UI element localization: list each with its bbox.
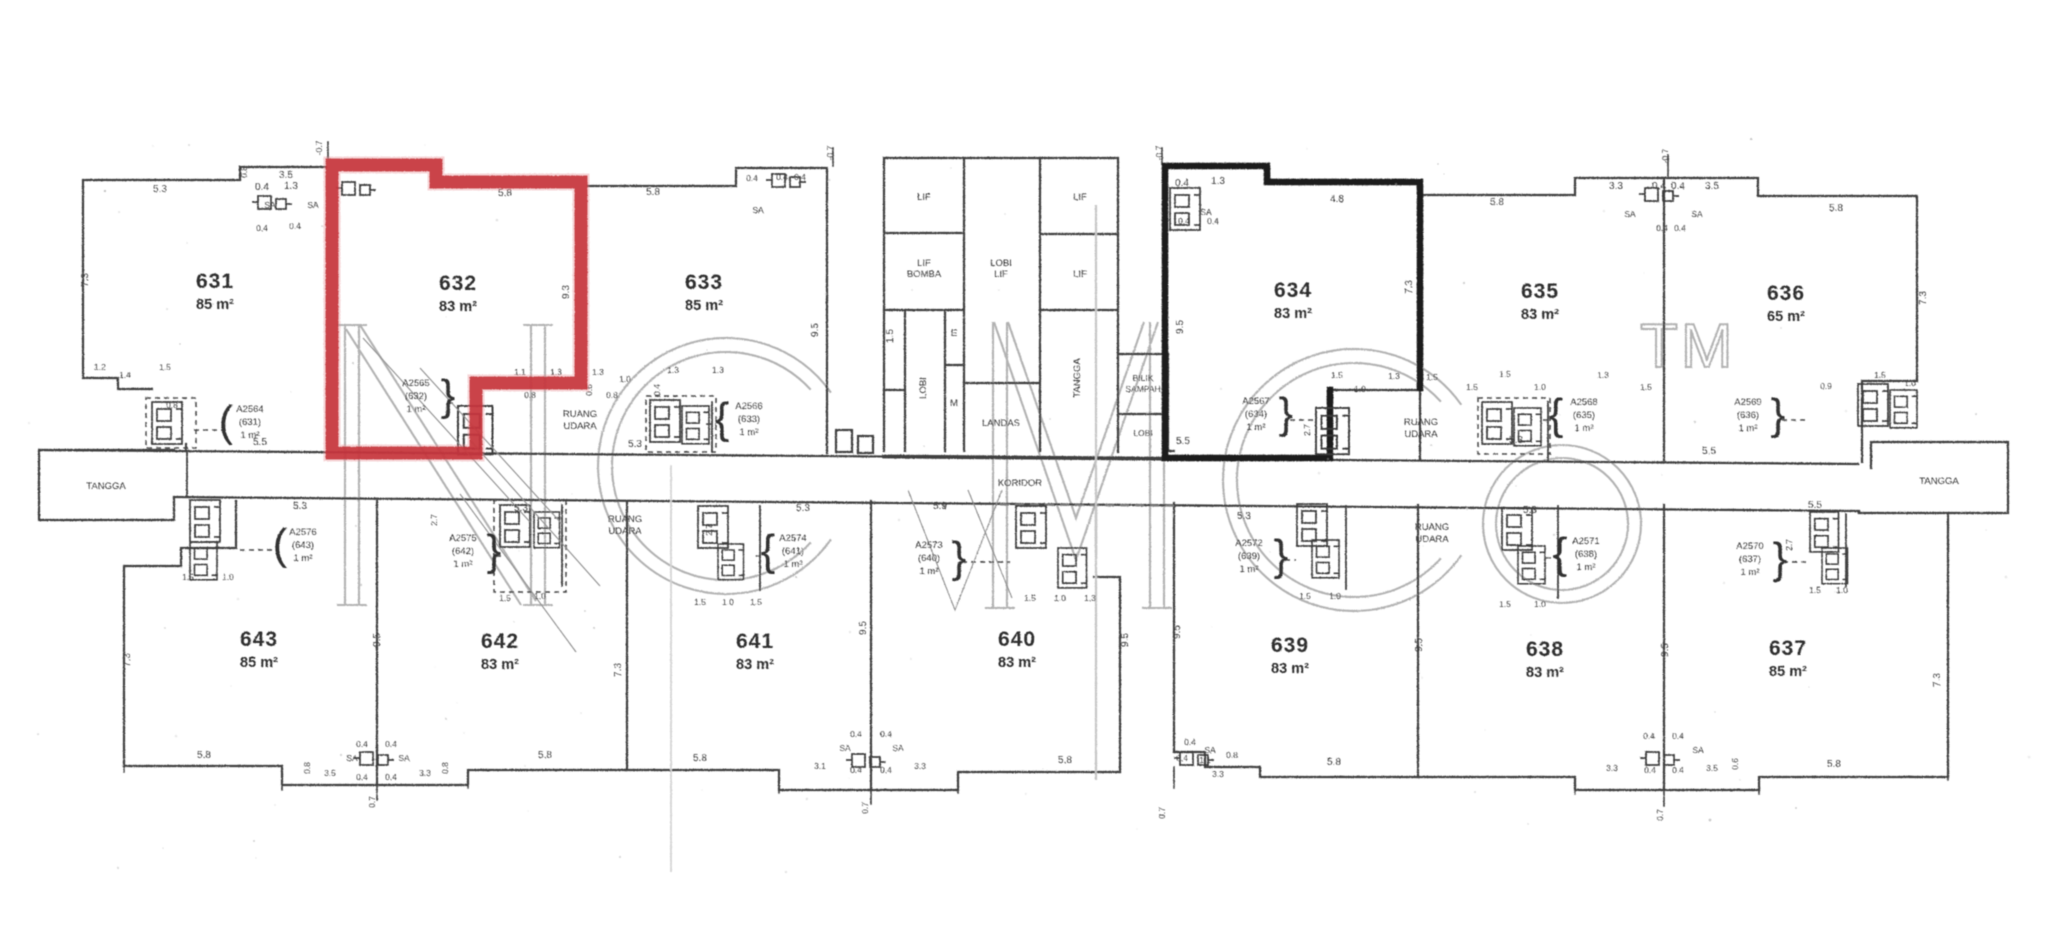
svg-text:1.5: 1.5	[1499, 599, 1511, 609]
svg-text:1.5: 1.5	[885, 329, 896, 343]
svg-text:7.3: 7.3	[122, 653, 133, 667]
svg-text:632: 632	[439, 272, 477, 295]
svg-text:7.3: 7.3	[613, 663, 624, 677]
svg-text:A2571: A2571	[1572, 536, 1599, 547]
svg-text:2.7: 2.7	[429, 514, 439, 526]
svg-text:1 m²: 1 m²	[920, 566, 939, 577]
svg-text:83 m²: 83 m²	[1526, 665, 1564, 681]
svg-text:0.4: 0.4	[880, 765, 892, 775]
svg-text:A2567: A2567	[1242, 396, 1269, 407]
svg-text:0.4: 0.4	[356, 772, 368, 782]
svg-text:0.7: 0.7	[367, 796, 377, 808]
svg-text:A2575: A2575	[449, 533, 476, 544]
svg-text:0.4: 0.4	[850, 765, 862, 775]
svg-text:A2576: A2576	[289, 527, 316, 538]
svg-text:0.4: 0.4	[1178, 216, 1190, 226]
svg-text:0.8: 0.8	[440, 762, 450, 774]
svg-text:SA: SA	[1692, 745, 1704, 755]
svg-text:1 m²: 1 m²	[784, 559, 803, 570]
svg-text:1 m²: 1 m²	[740, 427, 759, 438]
svg-text:641: 641	[736, 630, 774, 653]
svg-text:LANDAS: LANDAS	[982, 418, 1020, 429]
svg-text:0.4: 0.4	[1643, 731, 1655, 741]
svg-text:5.8: 5.8	[1827, 759, 1841, 770]
svg-text:1 m²: 1 m²	[1577, 562, 1596, 573]
svg-text:}: }	[952, 533, 967, 582]
svg-text:1.0: 1.0	[1904, 378, 1916, 388]
svg-text:642: 642	[481, 630, 519, 653]
svg-text:0.4: 0.4	[880, 729, 892, 739]
svg-text:7.3: 7.3	[80, 273, 91, 287]
svg-text:85 m²: 85 m²	[1769, 664, 1807, 680]
svg-text:1.0: 1.0	[1534, 382, 1546, 392]
svg-text:{: {	[715, 394, 730, 443]
svg-text:633: 633	[685, 271, 723, 294]
svg-text:3.1: 3.1	[814, 761, 826, 771]
svg-text:-0.7: -0.7	[825, 145, 835, 160]
svg-text:(634): (634)	[1245, 409, 1267, 420]
svg-text:0.4: 0.4	[385, 772, 397, 782]
svg-text:0.4: 0.4	[1644, 765, 1656, 775]
svg-text:0.4: 0.4	[1207, 216, 1219, 226]
svg-text:LOBI: LOBI	[918, 377, 929, 399]
svg-text:2.7: 2.7	[1302, 424, 1312, 436]
svg-text:SA: SA	[307, 200, 319, 210]
svg-text:5.3: 5.3	[796, 503, 810, 514]
svg-text:1.2: 1.2	[94, 362, 106, 372]
svg-text:0.8: 0.8	[302, 762, 312, 774]
svg-text:1.0: 1.0	[222, 572, 234, 582]
svg-text:{: {	[761, 526, 776, 575]
svg-text:1.3: 1.3	[712, 365, 724, 375]
svg-text:TM: TM	[1640, 312, 1736, 381]
svg-text:83 m²: 83 m²	[736, 657, 774, 673]
svg-text:0.4: 0.4	[1175, 178, 1189, 189]
svg-text:1.0: 1.0	[1534, 599, 1546, 609]
svg-text:0.4: 0.4	[1674, 223, 1686, 233]
svg-text:5.8: 5.8	[1490, 197, 1504, 208]
svg-text:5.5: 5.5	[1176, 436, 1190, 447]
svg-text:SA: SA	[1691, 209, 1703, 219]
svg-text:1.3: 1.3	[667, 365, 679, 375]
svg-text:0.4: 0.4	[652, 384, 662, 396]
svg-text:1.5: 1.5	[1426, 372, 1438, 382]
svg-text:0.4: 0.4	[746, 173, 758, 183]
svg-text:1 m²: 1 m²	[1575, 423, 1594, 434]
svg-text:-0.7: -0.7	[1660, 148, 1670, 163]
svg-text:3.3: 3.3	[914, 761, 926, 771]
svg-text:2.7: 2.7	[1784, 539, 1794, 551]
svg-text:5.3: 5.3	[293, 501, 307, 512]
svg-text:638: 638	[1526, 638, 1564, 661]
svg-text:SA: SA	[752, 205, 764, 215]
svg-text:(642): (642)	[452, 546, 474, 557]
svg-text:0.4: 0.4	[1184, 737, 1196, 747]
svg-text:1.0: 1.0	[534, 591, 546, 601]
svg-text:}: }	[1274, 531, 1289, 580]
svg-text:{: {	[1549, 390, 1564, 439]
svg-text:LIF: LIF	[1073, 269, 1087, 280]
svg-text:9.5: 9.5	[1172, 625, 1183, 639]
svg-text:(631): (631)	[239, 417, 261, 428]
svg-text:5.5: 5.5	[253, 437, 267, 448]
svg-text:(633): (633)	[738, 414, 760, 425]
svg-text:4.8: 4.8	[1330, 194, 1344, 205]
svg-text:636: 636	[1767, 282, 1805, 305]
svg-text:1.3: 1.3	[592, 367, 604, 377]
svg-text:0.4: 0.4	[256, 223, 268, 233]
svg-text:LIF: LIF	[917, 192, 931, 203]
svg-text:(637): (637)	[1739, 554, 1761, 565]
svg-text:9.5: 9.5	[1414, 638, 1425, 652]
svg-text:TANGGA: TANGGA	[1072, 358, 1083, 398]
svg-text:LIF: LIF	[917, 258, 931, 269]
svg-text:0.4: 0.4	[1656, 223, 1668, 233]
svg-text:0.6: 0.6	[1730, 758, 1740, 770]
svg-text:TANGGA: TANGGA	[1919, 476, 1959, 487]
svg-text:1 m²: 1 m²	[1739, 423, 1758, 434]
svg-text:1.3: 1.3	[1211, 176, 1225, 187]
svg-text:83 m²: 83 m²	[439, 299, 477, 315]
svg-text:SA: SA	[892, 743, 904, 753]
svg-text:UDARA: UDARA	[563, 421, 597, 432]
svg-text:3.5: 3.5	[324, 768, 336, 778]
svg-text:85 m²: 85 m²	[240, 655, 278, 671]
svg-text:0.4: 0.4	[385, 739, 397, 749]
svg-text:2.7: 2.7	[704, 524, 714, 536]
svg-text:9.3: 9.3	[561, 285, 572, 299]
svg-text:-0.7: -0.7	[1154, 145, 1164, 160]
svg-text:LIF: LIF	[994, 269, 1008, 280]
svg-text:5.8: 5.8	[1327, 757, 1341, 768]
svg-text:0.4: 0.4	[255, 182, 269, 193]
svg-text:1.5: 1.5	[694, 597, 706, 607]
svg-text:0.8: 0.8	[1226, 750, 1238, 760]
svg-text:5.8: 5.8	[1058, 755, 1072, 766]
svg-text:A2574: A2574	[779, 533, 806, 544]
svg-text:LOBI: LOBI	[1133, 428, 1152, 438]
svg-text:5.8: 5.8	[1829, 203, 1843, 214]
svg-text:5.3: 5.3	[514, 503, 528, 514]
svg-text:SAMPAH: SAMPAH	[1125, 384, 1160, 394]
svg-text:643: 643	[240, 628, 278, 651]
svg-text:5.3: 5.3	[1509, 435, 1523, 446]
svg-text:3.5: 3.5	[1706, 763, 1718, 773]
svg-text:SA: SA	[346, 753, 358, 763]
svg-text:SA: SA	[839, 743, 851, 753]
svg-text:1 m²: 1 m²	[407, 404, 426, 415]
svg-text:-0.7: -0.7	[314, 140, 324, 155]
svg-text:85 m²: 85 m²	[196, 297, 234, 313]
svg-text:0.4: 0.4	[289, 221, 301, 231]
svg-text:65 m²: 65 m²	[1767, 309, 1805, 325]
svg-text:}: }	[1771, 390, 1786, 439]
svg-text:}: }	[441, 371, 456, 420]
svg-text:634: 634	[1274, 279, 1312, 302]
svg-text:1.5: 1.5	[1024, 593, 1036, 603]
svg-text:KORIDOR: KORIDOR	[998, 478, 1042, 489]
svg-text:5.3: 5.3	[1523, 505, 1537, 516]
svg-text:639: 639	[1271, 634, 1309, 657]
svg-text:83 m²: 83 m²	[1271, 661, 1309, 677]
svg-text:1.5: 1.5	[750, 597, 762, 607]
svg-text:1.5: 1.5	[159, 362, 171, 372]
svg-text:9.5: 9.5	[1175, 320, 1186, 334]
svg-text:0.4: 0.4	[794, 172, 806, 182]
svg-text:0.7: 0.7	[1655, 809, 1665, 821]
svg-text:UDARA: UDARA	[608, 526, 642, 537]
svg-text:83 m²: 83 m²	[1274, 306, 1312, 322]
svg-text:LIF: LIF	[1073, 192, 1087, 203]
svg-text:1.5: 1.5	[182, 572, 194, 582]
svg-text:5.5: 5.5	[1702, 446, 1716, 457]
svg-text:83 m²: 83 m²	[998, 655, 1036, 671]
svg-text:5.8: 5.8	[197, 750, 211, 761]
svg-text:0.8: 0.8	[166, 400, 178, 410]
svg-text:0.4: 0.4	[356, 739, 368, 749]
svg-text:5.3: 5.3	[1237, 511, 1251, 522]
svg-text:1 m²: 1 m²	[294, 553, 313, 564]
svg-text:5.8: 5.8	[538, 750, 552, 761]
svg-text:1.5: 1.5	[1874, 370, 1886, 380]
svg-text:0.4: 0.4	[1176, 753, 1188, 763]
svg-text:1.3: 1.3	[1388, 371, 1400, 381]
svg-text:A2573: A2573	[915, 540, 942, 551]
svg-text:637: 637	[1769, 637, 1807, 660]
svg-text:}: }	[1279, 389, 1294, 438]
svg-text:SA: SA	[398, 753, 410, 763]
svg-text:1 m²: 1 m²	[1240, 564, 1259, 575]
svg-text:1.0: 1.0	[619, 374, 631, 384]
svg-text:1.0: 1.0	[722, 597, 734, 607]
svg-text:A2572: A2572	[1235, 538, 1262, 549]
svg-text:UDARA: UDARA	[1415, 534, 1449, 545]
svg-text:(638): (638)	[1575, 549, 1597, 560]
svg-text:0.7: 0.7	[1157, 807, 1167, 819]
svg-text:(639): (639)	[1238, 551, 1260, 562]
svg-text:(632): (632)	[405, 391, 427, 402]
svg-text:0.9: 0.9	[1820, 381, 1832, 391]
svg-text:640: 640	[998, 628, 1036, 651]
svg-text:9.5: 9.5	[1120, 633, 1131, 647]
svg-text:}: }	[487, 526, 502, 575]
svg-text:1.0: 1.0	[1329, 591, 1341, 601]
svg-text:1.0: 1.0	[1836, 585, 1848, 595]
svg-text:1.3: 1.3	[284, 181, 298, 192]
svg-text:TANGGA: TANGGA	[86, 481, 126, 492]
svg-text:(: (	[219, 397, 234, 446]
svg-text:9.5: 9.5	[1660, 643, 1671, 657]
svg-text:(640): (640)	[918, 553, 940, 564]
svg-text:A2566: A2566	[735, 401, 762, 412]
svg-text:RUANG: RUANG	[1415, 522, 1449, 533]
svg-text:5.8: 5.8	[693, 753, 707, 764]
svg-text:3.3: 3.3	[1606, 763, 1618, 773]
svg-text:5.9: 5.9	[933, 501, 947, 512]
svg-text:1.5: 1.5	[1499, 369, 1511, 379]
svg-text:0.4: 0.4	[850, 729, 862, 739]
svg-text:9.5: 9.5	[372, 633, 383, 647]
svg-text:0.4: 0.4	[1652, 181, 1666, 192]
svg-text:SA: SA	[1204, 745, 1216, 755]
svg-text:1.3: 1.3	[1084, 593, 1096, 603]
svg-text:1.5: 1.5	[1466, 382, 1478, 392]
svg-text:1.5: 1.5	[1809, 585, 1821, 595]
svg-text:5.3: 5.3	[628, 439, 642, 450]
svg-text:1.5: 1.5	[499, 593, 511, 603]
svg-text:9.5: 9.5	[810, 323, 821, 337]
svg-text:1.5: 1.5	[1640, 382, 1652, 392]
svg-text:1.4: 1.4	[119, 370, 131, 380]
svg-text:5.8: 5.8	[646, 187, 660, 198]
svg-text:(635): (635)	[1573, 410, 1595, 421]
svg-text:3.3: 3.3	[1212, 769, 1224, 779]
svg-text:3.5: 3.5	[1705, 181, 1719, 192]
svg-text:(: (	[273, 520, 288, 569]
svg-text:A2568: A2568	[1570, 397, 1597, 408]
svg-text:E: E	[951, 328, 957, 339]
svg-text:0.4: 0.4	[1672, 765, 1684, 775]
svg-text:{: {	[1553, 529, 1568, 578]
svg-text:RUANG: RUANG	[608, 514, 642, 525]
svg-text:0.4: 0.4	[1671, 181, 1685, 192]
svg-text:1.5: 1.5	[1299, 591, 1311, 601]
svg-text:0.4: 0.4	[776, 172, 788, 182]
svg-text:1 m²: 1 m²	[1247, 422, 1266, 433]
svg-text:3.5: 3.5	[279, 170, 293, 181]
svg-text:3.3: 3.3	[1609, 181, 1623, 192]
svg-text:1.0: 1.0	[1354, 384, 1366, 394]
svg-text:85 m²: 85 m²	[685, 298, 723, 314]
svg-text:SA: SA	[264, 200, 276, 210]
svg-text:BILIK: BILIK	[1133, 373, 1154, 383]
svg-text:0.8: 0.8	[239, 166, 249, 178]
svg-text:7.3: 7.3	[1932, 673, 1943, 687]
svg-text:(641): (641)	[782, 546, 804, 557]
svg-text:A2564: A2564	[236, 404, 263, 415]
svg-text:SA: SA	[1624, 209, 1636, 219]
svg-text:LOBI: LOBI	[990, 258, 1012, 269]
svg-text:A2565: A2565	[402, 378, 429, 389]
svg-text:BOMBA: BOMBA	[907, 269, 942, 280]
svg-text:5.3: 5.3	[153, 184, 167, 195]
svg-text:631: 631	[196, 270, 234, 293]
svg-text:1.1: 1.1	[1199, 755, 1211, 765]
svg-text:1 m²: 1 m²	[454, 559, 473, 570]
svg-text:RUANG: RUANG	[1404, 417, 1438, 428]
svg-text:1.3: 1.3	[1597, 370, 1609, 380]
svg-text:83 m²: 83 m²	[1521, 307, 1559, 323]
svg-text:(636): (636)	[1737, 410, 1759, 421]
svg-text:UDARA: UDARA	[1404, 429, 1438, 440]
svg-text:(643): (643)	[292, 540, 314, 551]
svg-text:0.7: 0.7	[860, 802, 870, 814]
svg-text:83 m²: 83 m²	[481, 657, 519, 673]
svg-text:3.3: 3.3	[419, 768, 431, 778]
svg-text:1.5: 1.5	[1331, 370, 1343, 380]
svg-text:7.3: 7.3	[1404, 280, 1415, 294]
svg-text:0.4: 0.4	[1672, 731, 1684, 741]
svg-text:A2570: A2570	[1736, 541, 1763, 552]
svg-text:7.3: 7.3	[1918, 291, 1929, 305]
svg-text:A2569: A2569	[1734, 397, 1761, 408]
svg-text:M: M	[950, 398, 958, 409]
svg-text:0.8: 0.8	[606, 390, 618, 400]
svg-text:1 m²: 1 m²	[1741, 567, 1760, 578]
svg-text:RUANG: RUANG	[563, 409, 597, 420]
svg-text:9.5: 9.5	[858, 621, 869, 635]
svg-text:635: 635	[1521, 280, 1559, 303]
svg-text:5.5: 5.5	[1808, 500, 1822, 511]
svg-text:1.0: 1.0	[1054, 593, 1066, 603]
